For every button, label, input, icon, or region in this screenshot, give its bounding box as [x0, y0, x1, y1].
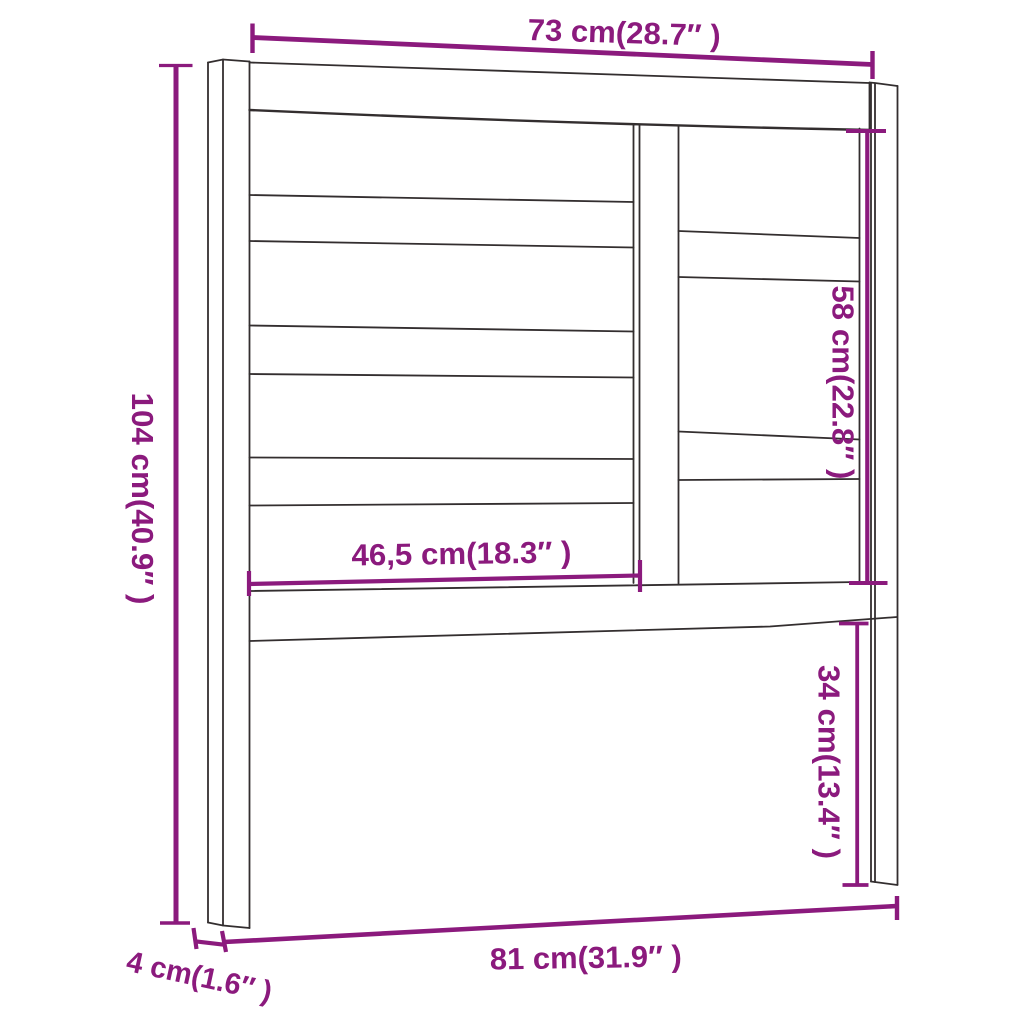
- svg-text:58 cm(22.8″ ): 58 cm(22.8″ ): [825, 285, 859, 479]
- svg-text:46,5 cm(18.3″ ): 46,5 cm(18.3″ ): [351, 535, 571, 572]
- svg-text:34 cm(13.4″ ): 34 cm(13.4″ ): [812, 665, 846, 859]
- svg-text:104 cm(40.9″ ): 104 cm(40.9″ ): [125, 393, 159, 605]
- svg-text:4 cm(1.6″ ): 4 cm(1.6″ ): [124, 945, 276, 1009]
- svg-text:81 cm(31.9″ ): 81 cm(31.9″ ): [490, 939, 683, 976]
- svg-text:73 cm(28.7″ ): 73 cm(28.7″ ): [527, 13, 721, 53]
